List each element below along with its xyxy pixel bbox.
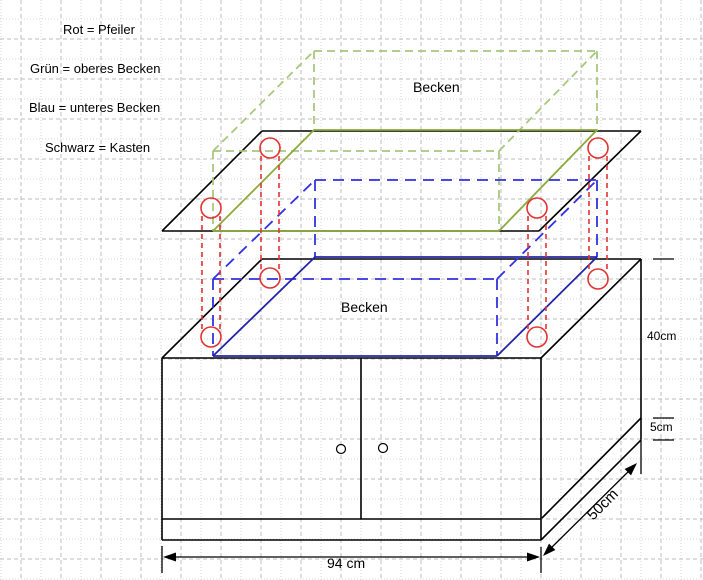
- dimension-plinth-height-label: 5cm: [650, 421, 673, 434]
- legend-green-upper-basin: Grün = oberes Becken: [30, 62, 160, 76]
- upper-basin-label: Becken: [413, 80, 460, 95]
- legend-red-pillars: Rot = Pfeiler: [63, 23, 135, 37]
- legend-black-cabinet: Schwarz = Kasten: [45, 141, 150, 155]
- diagram-canvas: [0, 0, 703, 580]
- sketch-canvas: Rot = Pfeiler Grün = oberes Becken Blau …: [0, 0, 703, 580]
- dimension-body-height-label: 40cm: [647, 330, 676, 343]
- legend-blue-lower-basin: Blau = unteres Becken: [29, 101, 160, 115]
- dimension-width-label: 94 cm: [327, 556, 365, 571]
- lower-basin-label: Becken: [341, 300, 388, 315]
